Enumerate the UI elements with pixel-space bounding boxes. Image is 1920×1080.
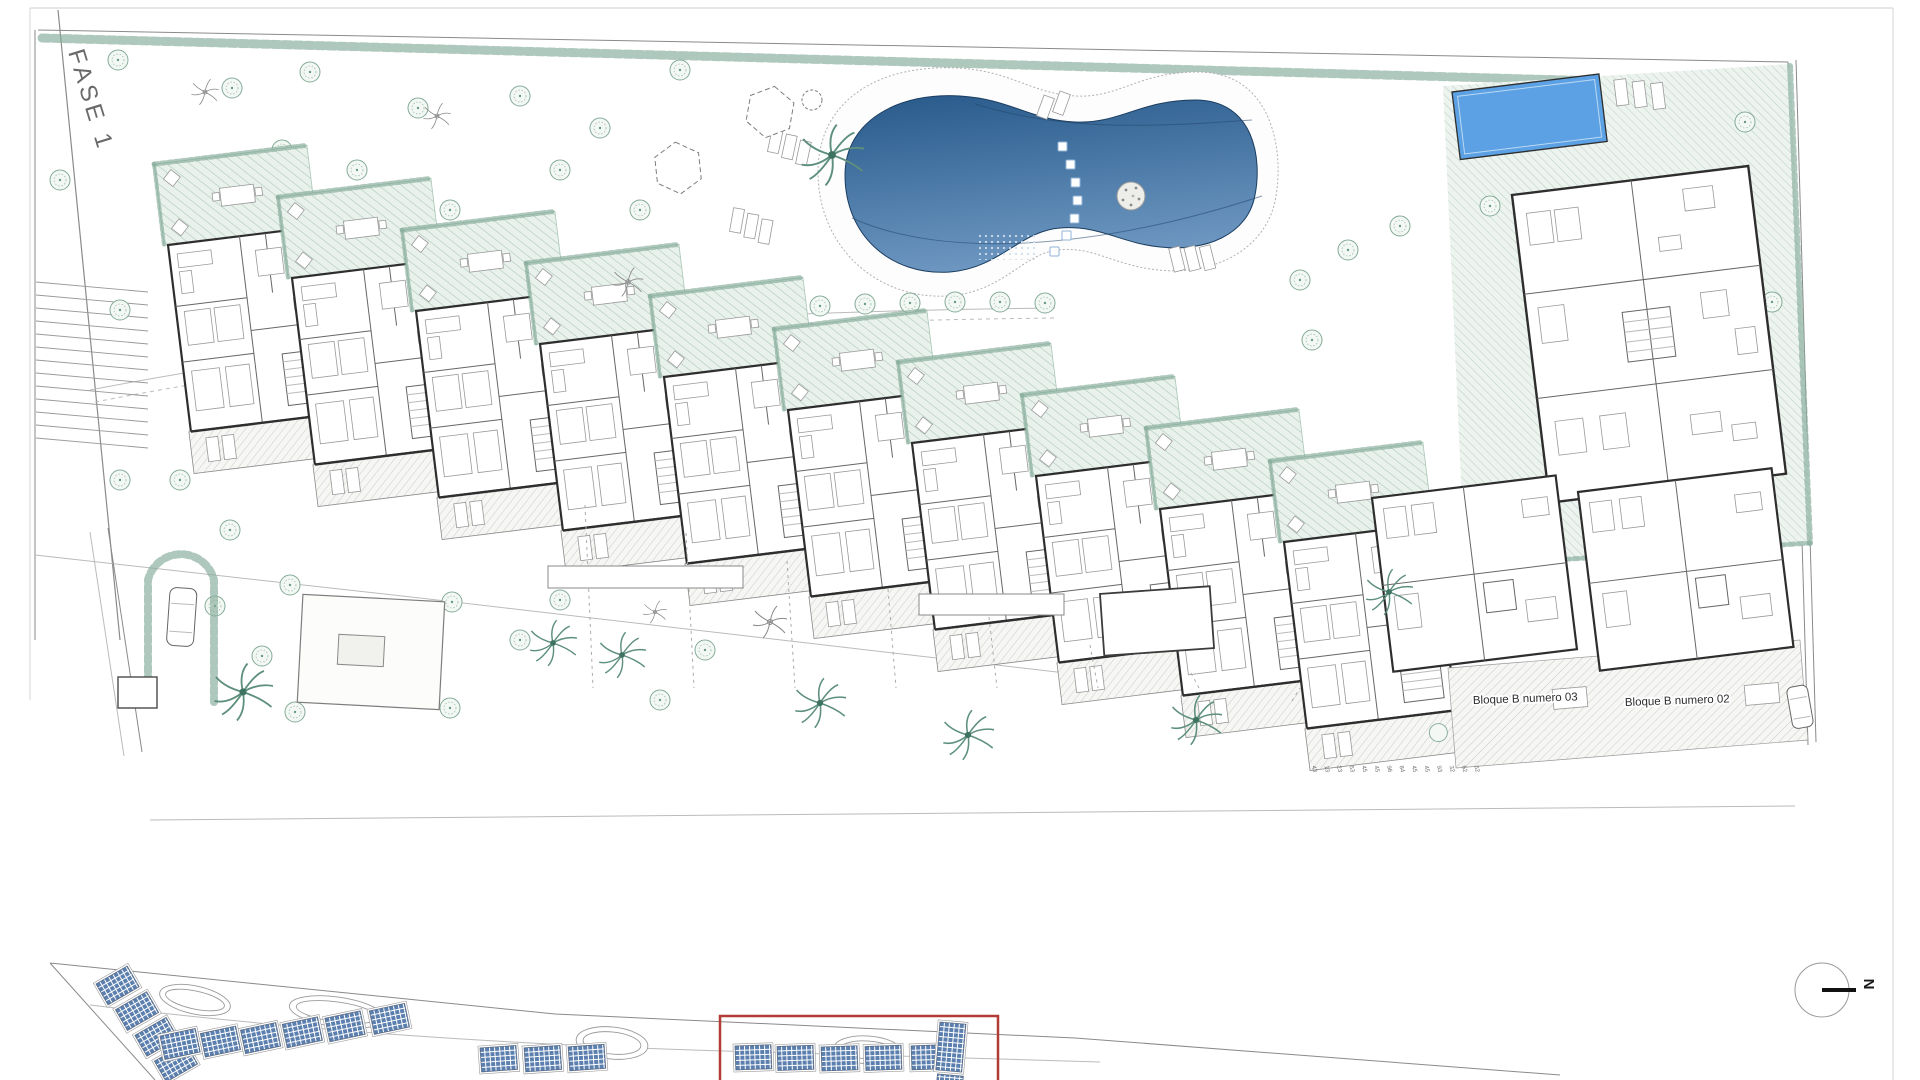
- stairs: [36, 282, 148, 448]
- building-block-bloque-02: [1578, 468, 1793, 670]
- svg-text:45: 45: [1360, 765, 1367, 773]
- building-block-bloque-03: [1372, 475, 1577, 671]
- overview-buildings: [93, 957, 968, 1080]
- svg-text:52: 52: [1473, 765, 1480, 773]
- pergola: [919, 594, 1064, 615]
- plaza: [297, 594, 444, 709]
- pool-island: [1117, 182, 1145, 210]
- svg-text:96: 96: [1385, 765, 1392, 773]
- tree: [1480, 196, 1500, 216]
- car: [166, 587, 197, 647]
- pergola: [548, 566, 743, 588]
- tree: [1735, 112, 1755, 132]
- site-plan-svg: Bloque B numero 03 Bloque B numero 02 43…: [0, 0, 1920, 1080]
- svg-text:45: 45: [1410, 765, 1417, 773]
- architectural-site-plan-sheet: Bloque B numero 03 Bloque B numero 02 43…: [0, 0, 1920, 1080]
- svg-text:45: 45: [1373, 765, 1380, 773]
- pool-texture: [976, 234, 1036, 260]
- parking-bay: [148, 554, 214, 702]
- svg-text:53: 53: [1348, 765, 1355, 773]
- svg-text:43: 43: [1310, 765, 1317, 773]
- parking-numbers: 4313235345459684454593326252: [1310, 765, 1480, 773]
- svg-text:32: 32: [1448, 765, 1455, 773]
- svg-text:13: 13: [1323, 765, 1330, 773]
- svg-text:62: 62: [1460, 765, 1467, 773]
- north-indicator: N: [1795, 963, 1877, 1017]
- pool: [653, 68, 1278, 297]
- svg-text:45: 45: [1423, 765, 1430, 773]
- utility-structure: [118, 677, 157, 708]
- svg-text:93: 93: [1435, 765, 1442, 773]
- north-label: N: [1860, 979, 1877, 990]
- svg-text:84: 84: [1398, 765, 1405, 773]
- utility-structure: [1100, 586, 1214, 656]
- building-block-top-right: [1512, 166, 1786, 503]
- overview-plan: [50, 957, 1560, 1080]
- svg-text:23: 23: [1335, 765, 1342, 773]
